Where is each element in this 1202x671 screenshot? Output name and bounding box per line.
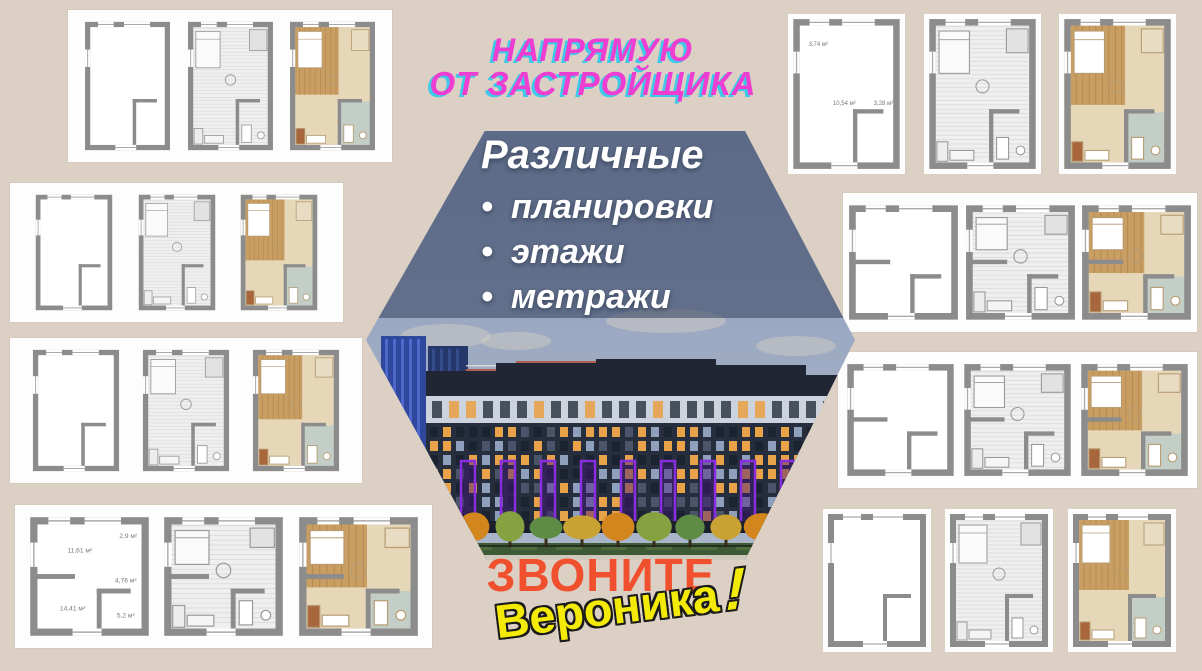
svg-text:4,76 м²: 4,76 м² [115,578,137,585]
feature-item: •метражи [481,275,855,320]
floor-plan-outline: 11,61 м²2,9 м²4,76 м²14,41 м²5,2 м² [29,516,150,637]
floor-plan-outline [846,363,955,477]
headline: НАПРЯМУЮ ОТ ЗАСТРОЙЩИКА [408,34,778,100]
exclamation-mark: ! [719,554,752,626]
floor-plan [163,516,284,637]
floor-plan-furnished [138,194,216,311]
floor-plan-outline [35,194,113,311]
floor-plan [252,349,340,472]
floor-plan [84,21,171,151]
floor-plan-group-bottom-left: 11,61 м²2,9 м²4,76 м²14,41 м²5,2 м² [15,505,432,648]
headline-line-1: НАПРЯМУЮ [408,34,778,67]
floor-plan-furnished [142,349,230,472]
floor-plan [289,21,376,151]
ad-canvas: НАПРЯМУЮ ОТ ЗАСТРОЙЩИКА [0,0,1202,671]
floor-plan-render [289,21,376,151]
hexagon-photo: Различные •планировки•этажи•метражи [366,131,855,560]
floor-plan-render [1081,204,1192,321]
floor-plan-outline: 3,74 м²10,54 м²3,28 м² [792,18,901,170]
svg-text:11,61 м²: 11,61 м² [67,547,93,554]
floor-plan-render [298,516,419,637]
feature-item: •планировки [481,185,855,230]
floor-plan [846,363,955,477]
floor-plan-card: 3,74 м²10,54 м²3,28 м² [788,14,905,174]
floor-plan-furnished [187,21,274,151]
floor-plan-group-right-middle [843,193,1197,332]
floor-plan-render [1063,18,1172,170]
svg-text:10,54 м²: 10,54 м² [833,101,856,107]
floor-plan-group-top-left [68,10,392,162]
features-list: •планировки•этажи•метражи [481,185,855,320]
floor-plan-furnished [963,363,1072,477]
floor-plan [240,194,318,311]
floor-plan-furnished [965,204,1076,321]
floor-plan [142,349,230,472]
bullet-icon: • [481,185,511,230]
floor-plan-group-top-right: 3,74 м²10,54 м²3,28 м² [770,8,1194,180]
floor-plan-render [252,349,340,472]
floor-plan-group-left-lower [10,338,362,483]
floor-plan-outline [848,204,959,321]
floor-plan-furnished [928,18,1037,170]
floor-plan [35,194,113,311]
floor-plan-card [823,509,931,652]
svg-text:14,41 м²: 14,41 м² [59,605,85,612]
floor-plan [298,516,419,637]
feature-item: •этажи [481,230,855,275]
floor-plan [1081,204,1192,321]
headline-line-2: ОТ ЗАСТРОЙЩИКА [408,67,778,100]
floor-plan [963,363,1072,477]
bullet-icon: • [481,275,511,320]
floor-plan-outline [827,513,927,648]
floor-plan-furnished [949,513,1049,648]
floor-plan-outline [84,21,171,151]
floor-plan-furnished [163,516,284,637]
svg-text:5,2 м²: 5,2 м² [116,613,135,620]
floor-plan [187,21,274,151]
floor-plan [32,349,120,472]
svg-text:3,74 м²: 3,74 м² [809,42,828,48]
bullet-icon: • [481,230,511,275]
floor-plan-group-bottom-right [808,503,1190,658]
floor-plan-card [924,14,1041,174]
floor-plan: 11,61 м²2,9 м²4,76 м²14,41 м²5,2 м² [29,516,150,637]
agent-name-text: Вероника [492,568,721,648]
floor-plan-render [240,194,318,311]
floor-plan-render [1080,363,1189,477]
floor-plan [965,204,1076,321]
floor-plan [138,194,216,311]
floor-plan [848,204,959,321]
floor-plan-card [945,509,1053,652]
floor-plan-render [1072,513,1172,648]
floor-plan [1080,363,1189,477]
floor-plan-outline [32,349,120,472]
floor-plan-card [1068,509,1176,652]
svg-text:3,28 м²: 3,28 м² [874,101,893,107]
svg-text:2,9 м²: 2,9 м² [119,533,138,540]
floor-plan-group-right-lower [838,352,1197,488]
floor-plan-group-left-middle [10,183,343,322]
floor-plan-card [1059,14,1176,174]
